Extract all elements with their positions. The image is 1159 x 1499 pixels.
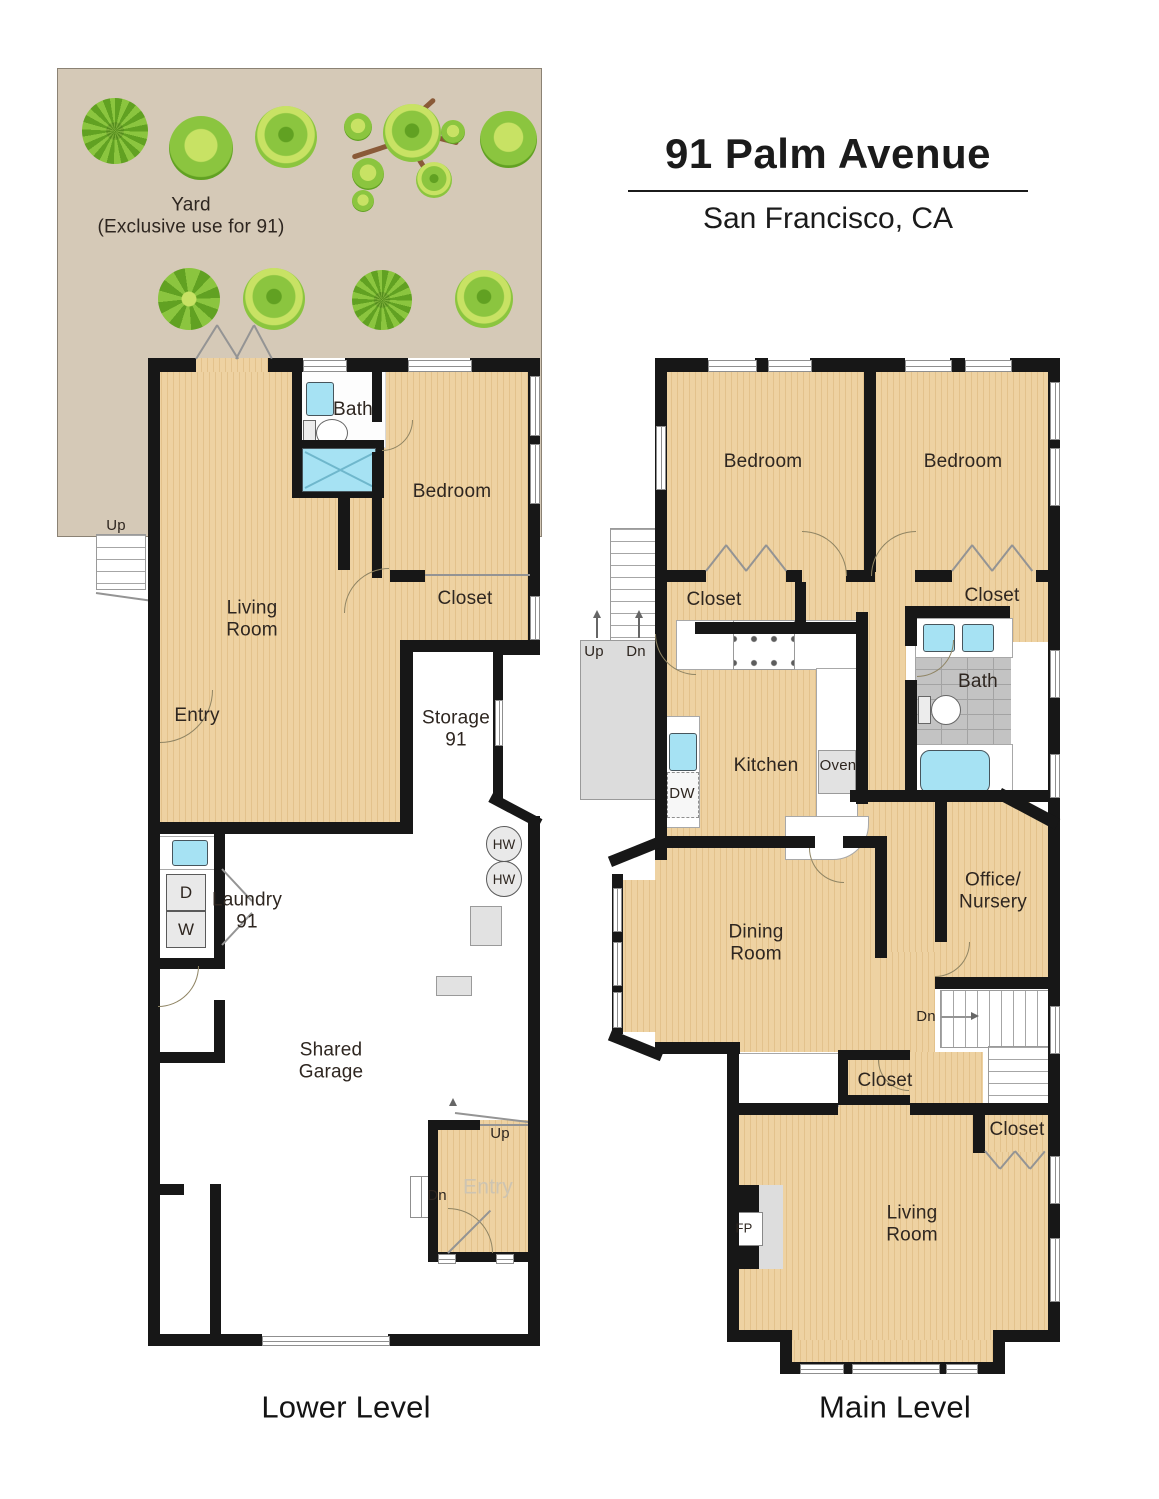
- washer-icon: W: [166, 911, 206, 948]
- tree-icon: [158, 268, 220, 330]
- window: [495, 700, 503, 746]
- tree-icon: [455, 270, 513, 328]
- tree-icon: [416, 162, 452, 198]
- dryer-icon: D: [166, 874, 206, 911]
- caption-lower-level: Lower Level: [261, 1390, 430, 1427]
- stairs-exterior: [610, 528, 657, 642]
- wall-segment: [843, 836, 875, 848]
- wall-segment: [905, 606, 1010, 618]
- wall-segment: [727, 1042, 739, 1342]
- bath-sink-icon: [962, 624, 994, 652]
- marker-dn: Dn: [916, 1008, 936, 1026]
- wall-segment: [148, 358, 160, 1346]
- wall-segment: [210, 1184, 221, 1334]
- wall-segment: [838, 1095, 910, 1105]
- room-label-office-nursery: Office/ Nursery: [959, 870, 1027, 915]
- floor-bedroom: [378, 368, 533, 578]
- window: [1050, 382, 1060, 440]
- room-label-closet: Closet: [437, 588, 492, 610]
- wall-segment: [864, 358, 876, 572]
- room-label-kitchen: Kitchen: [734, 755, 799, 777]
- garage-storage-box: [436, 976, 472, 996]
- tree-icon: [352, 158, 384, 190]
- window: [768, 360, 812, 372]
- room-label-bath: Bath: [333, 399, 373, 421]
- arrow-up-icon: [449, 1098, 457, 1106]
- wall-segment: [338, 498, 350, 570]
- floor-living-bay: [783, 1340, 1003, 1364]
- stairs-interior: [940, 990, 1052, 1048]
- wall-segment: [148, 1334, 262, 1346]
- laundry-sink-icon: [172, 840, 208, 866]
- window: [656, 426, 666, 490]
- wall-segment: [910, 1103, 973, 1115]
- window: [1050, 1156, 1060, 1204]
- tree-icon: [255, 106, 317, 168]
- window: [613, 888, 622, 932]
- wall-segment: [390, 570, 425, 582]
- window: [530, 444, 540, 504]
- caption-main-level: Main Level: [819, 1390, 971, 1427]
- window: [1050, 1238, 1060, 1302]
- door-threshold: [438, 1254, 456, 1264]
- wall-segment: [148, 1184, 184, 1195]
- wall-segment: [1036, 570, 1060, 582]
- room-label-storage: Storage 91: [422, 708, 490, 753]
- stairs-to-yard: [96, 534, 146, 590]
- wall-segment: [973, 1103, 985, 1153]
- room-label-entry: Entry: [174, 705, 219, 727]
- page-subtitle: San Francisco, CA: [628, 202, 1028, 236]
- room-label-dining-room: Dining Room: [728, 922, 783, 967]
- wall-segment: [950, 358, 965, 372]
- kitchen-sink-icon: [669, 733, 697, 771]
- window: [905, 360, 952, 372]
- washer-label: W: [178, 920, 194, 940]
- window: [613, 992, 622, 1028]
- window: [1050, 650, 1060, 698]
- wall-segment: [905, 606, 917, 646]
- arrow-up-icon: [635, 610, 643, 618]
- bathtub-icon: [920, 750, 990, 794]
- wall-segment: [655, 570, 706, 582]
- water-heater-label: HW: [493, 872, 516, 887]
- title-block: 91 Palm Avenue San Francisco, CA: [628, 130, 1028, 236]
- room-label-entry-watermark: Entry: [463, 1176, 513, 1201]
- marker-up: Up: [490, 1125, 510, 1143]
- room-label-bedroom: Bedroom: [724, 451, 803, 473]
- marker-dn: Dn: [427, 1187, 447, 1205]
- water-heater-icon: HW: [486, 826, 522, 862]
- wall-segment: [838, 1050, 910, 1060]
- room-label-closet: Closet: [989, 1119, 1044, 1141]
- tree-icon: [169, 116, 233, 180]
- wall-segment: [428, 1120, 480, 1130]
- window: [530, 596, 540, 640]
- tree-icon: [352, 270, 412, 330]
- window: [530, 376, 540, 436]
- tree-icon: [383, 104, 441, 162]
- wall-segment: [292, 358, 302, 448]
- tree-icon: [441, 120, 465, 144]
- wall-segment: [528, 816, 540, 1346]
- room-label-closet: Closet: [857, 1070, 912, 1092]
- room-label-shared-garage: Shared Garage: [299, 1040, 364, 1085]
- toilet-icon: [918, 696, 931, 724]
- room-label-living-room: Living Room: [886, 1203, 937, 1248]
- wall-segment: [905, 680, 917, 802]
- wall-segment: [875, 836, 887, 958]
- floor-dining-bay: [620, 880, 656, 1032]
- window: [408, 360, 472, 372]
- closet-slider-line: [425, 574, 530, 576]
- arrow-right-icon: [971, 1012, 979, 1020]
- tree-icon: [243, 268, 305, 330]
- room-label-living-room: Living Room: [226, 598, 277, 643]
- wall-segment: [850, 790, 1050, 802]
- wall-segment: [400, 640, 540, 652]
- tree-icon: [352, 190, 374, 212]
- marker-up: Up: [106, 517, 126, 535]
- garage-door: [262, 1336, 390, 1346]
- dryer-label: D: [180, 883, 192, 903]
- window: [1050, 1006, 1060, 1054]
- wall-segment: [655, 622, 665, 634]
- floor-hall: [875, 952, 935, 1056]
- wall-segment: [856, 612, 868, 804]
- tree-icon: [82, 98, 148, 164]
- page-title: 91 Palm Avenue: [628, 130, 1028, 192]
- marker-up: Up: [584, 643, 604, 661]
- wall-segment: [727, 1103, 838, 1115]
- floor-hall: [910, 1052, 983, 1105]
- arrow-line: [596, 618, 598, 638]
- bath-sink-icon: [306, 382, 334, 416]
- wall-segment: [388, 1334, 540, 1346]
- label-dishwasher: DW: [669, 785, 694, 803]
- window: [965, 360, 1012, 372]
- stairs-interior: [988, 1046, 1052, 1109]
- wall-segment: [695, 622, 866, 634]
- wall-segment: [655, 358, 667, 650]
- stair-rail-line: [96, 592, 150, 601]
- room-label-bath: Bath: [958, 671, 998, 693]
- window: [613, 942, 622, 986]
- stair-landing: [580, 640, 658, 800]
- window: [708, 360, 757, 372]
- floor-plan-canvas: 91 Palm Avenue San Francisco, CA Yard (E…: [0, 0, 1159, 1499]
- window: [852, 1364, 940, 1374]
- water-heater-icon: HW: [486, 861, 522, 897]
- window: [946, 1364, 978, 1374]
- window: [1050, 754, 1060, 798]
- wall-segment: [810, 358, 905, 372]
- wall-segment: [786, 570, 802, 582]
- wall-segment: [655, 650, 667, 860]
- label-oven: Oven: [820, 757, 857, 775]
- door-threshold: [496, 1254, 514, 1264]
- wall-segment: [148, 1052, 225, 1063]
- arrow-line: [638, 618, 640, 638]
- wall-segment: [372, 358, 382, 422]
- room-label-bedroom: Bedroom: [924, 451, 1003, 473]
- window: [1050, 448, 1060, 506]
- tree-icon: [344, 113, 372, 141]
- garage-storage-box: [470, 906, 502, 946]
- tree-icon: [480, 111, 537, 168]
- wall-segment: [915, 570, 952, 582]
- water-heater-label: HW: [493, 837, 516, 852]
- yard-label: Yard (Exclusive use for 91): [97, 195, 284, 240]
- wall-segment: [148, 822, 404, 834]
- arrow-up-icon: [593, 610, 601, 618]
- arrow-line: [941, 1016, 971, 1018]
- window: [303, 360, 347, 372]
- marker-dn: Dn: [626, 643, 646, 661]
- label-fireplace: FP: [735, 1220, 752, 1235]
- room-label-bedroom: Bedroom: [413, 481, 492, 503]
- wall-segment: [935, 802, 947, 942]
- toilet-icon: [931, 695, 961, 725]
- room-label-closet: Closet: [686, 589, 741, 611]
- wall-segment: [400, 640, 413, 834]
- wall-segment: [372, 452, 382, 578]
- room-label-closet: Closet: [964, 585, 1019, 607]
- floor-yard-door-threshold: [196, 358, 268, 372]
- room-label-laundry: Laundry 91: [212, 890, 282, 935]
- wall-segment: [935, 977, 1050, 989]
- wall-segment: [655, 836, 815, 848]
- stair-void: [733, 1053, 839, 1107]
- window: [800, 1364, 844, 1374]
